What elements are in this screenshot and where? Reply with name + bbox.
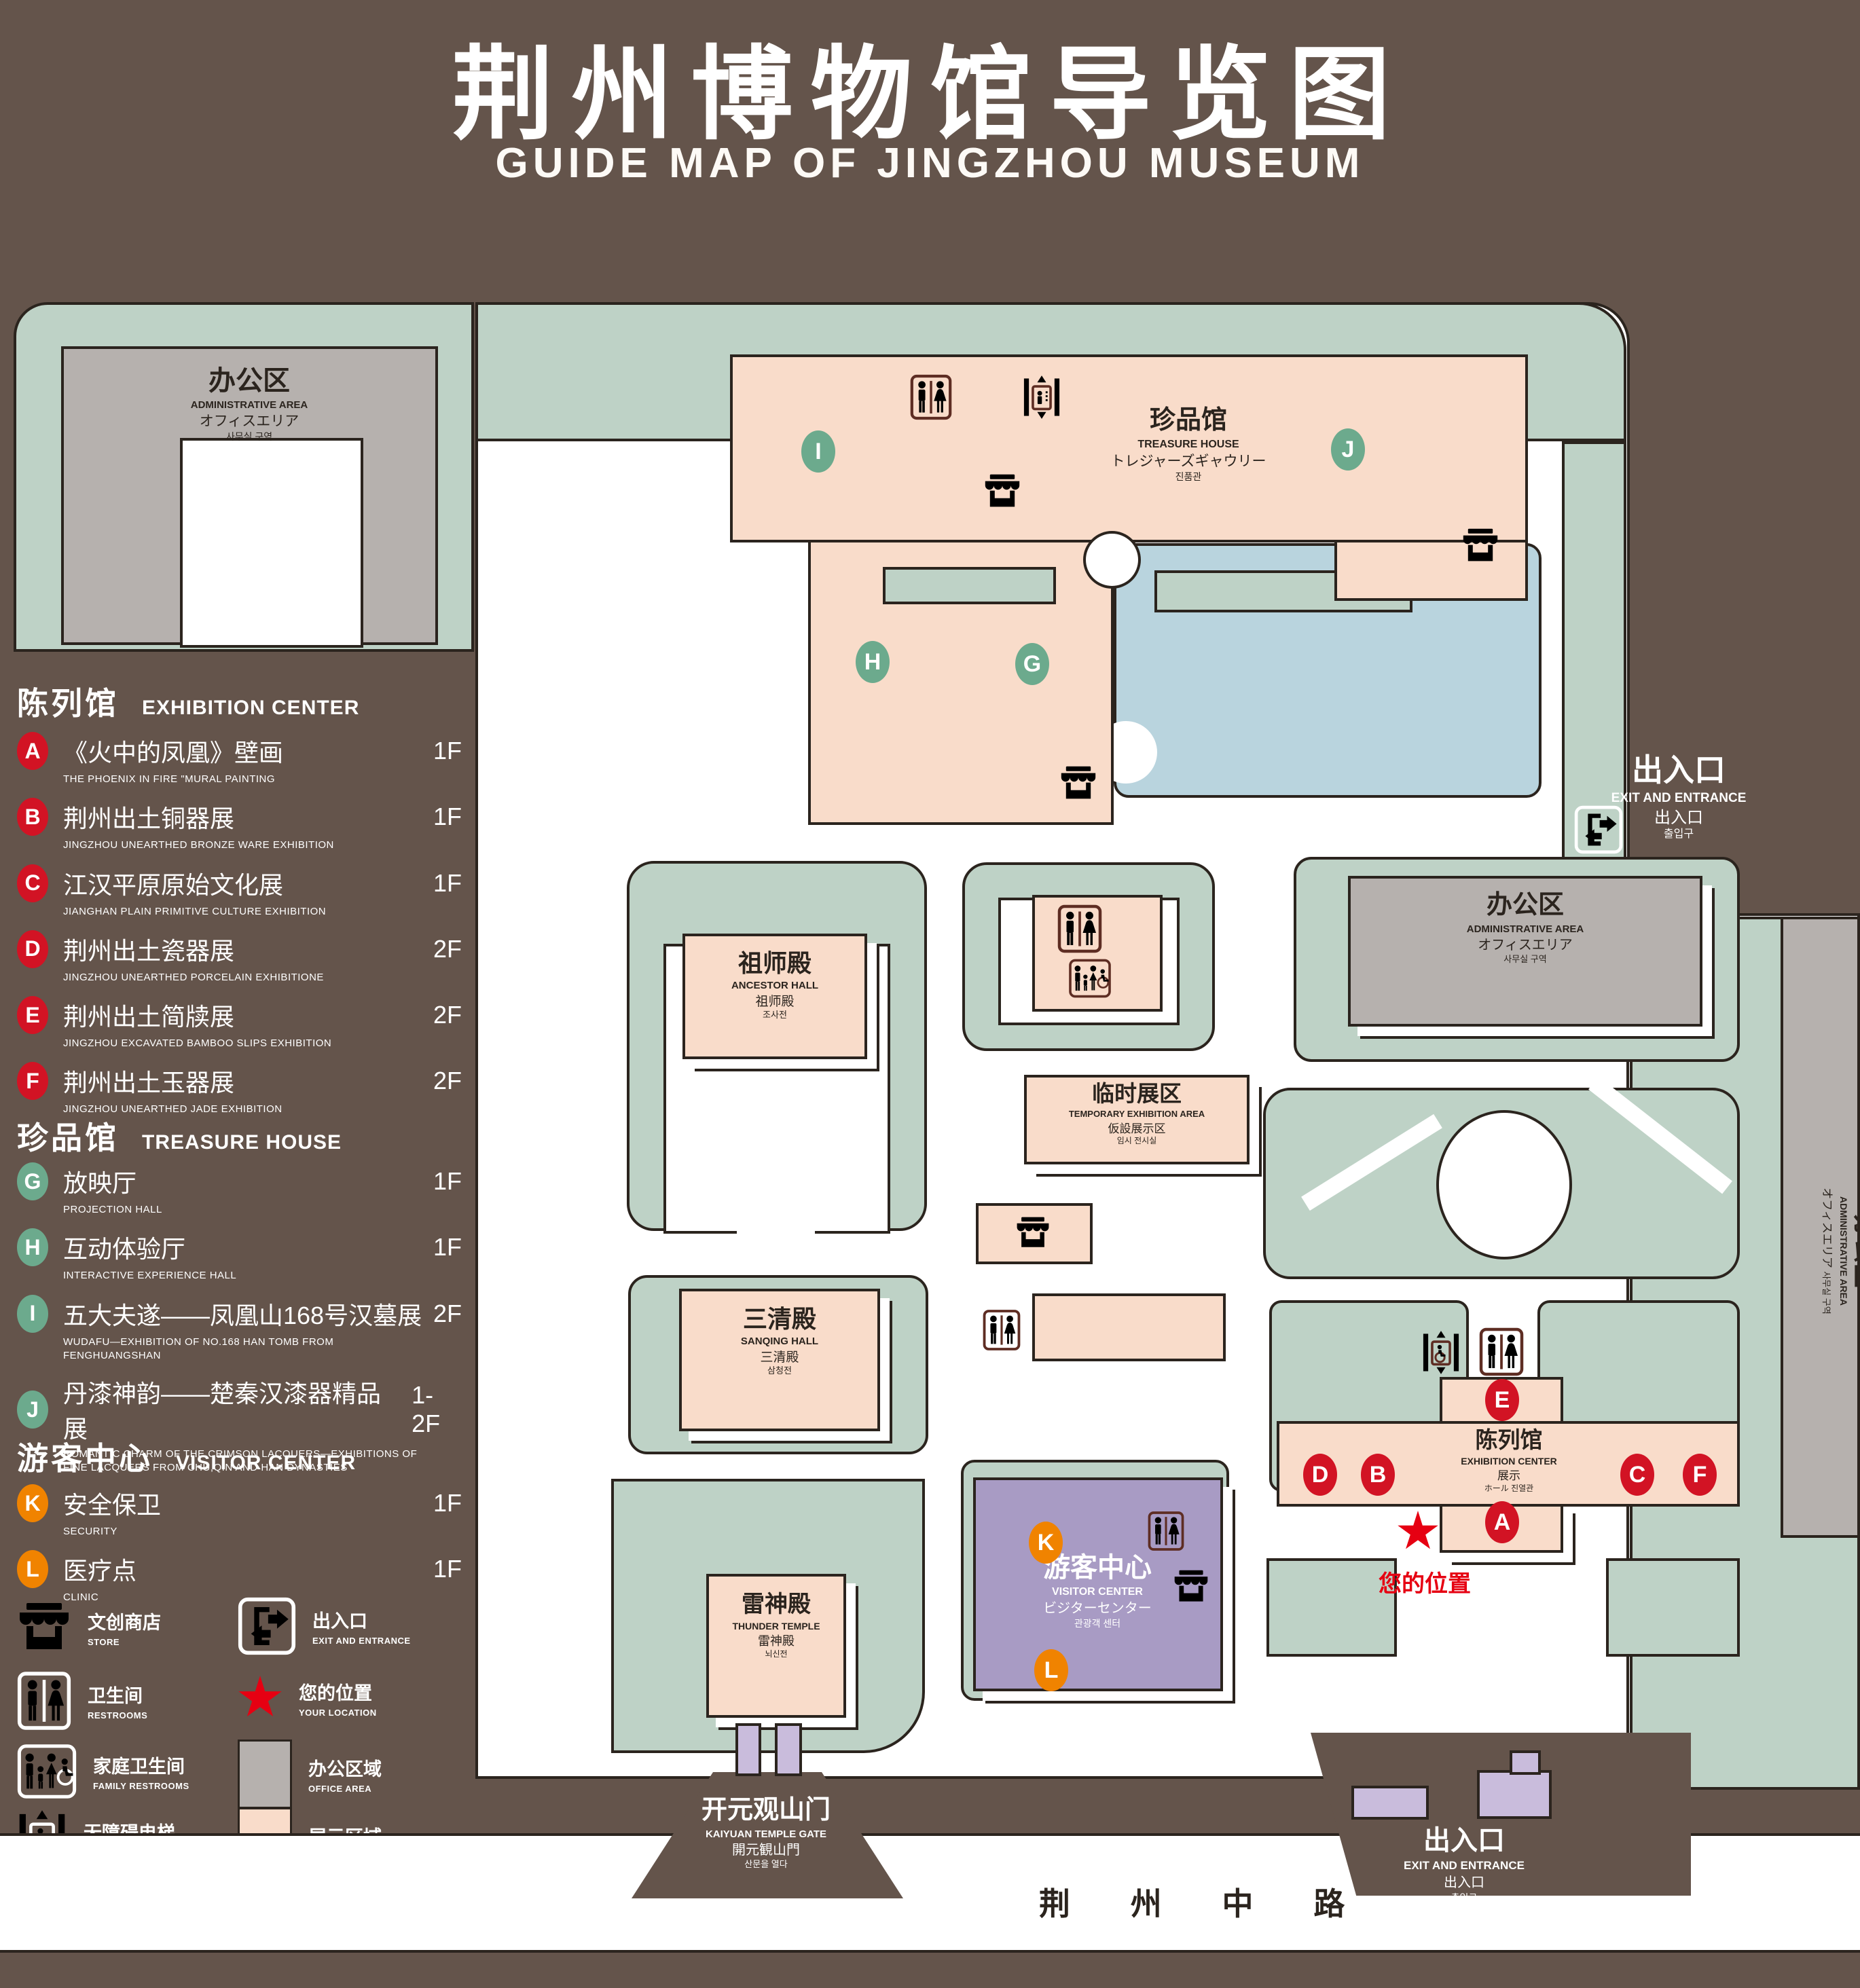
legend-item-title: 放映厅 <box>63 1164 426 1199</box>
lawn-exhibition-southeast <box>1606 1558 1740 1657</box>
map-marker-J: J <box>1331 428 1365 471</box>
exit-icon <box>238 1597 296 1655</box>
legend-marker-E: E <box>17 996 48 1034</box>
restroom-icon <box>1057 904 1103 953</box>
legend-item-floor: 2F <box>433 1300 462 1328</box>
temporary-exhibition-corridor <box>1032 1293 1226 1361</box>
legend-item-floor: 2F <box>433 1067 462 1095</box>
admin-east-label: 办公区 ADMINISTRATIVE AREA オフィスエリア 사무실 구역 <box>1820 1143 1860 1360</box>
legend-item-floor: 1F <box>433 1555 462 1583</box>
family-restroom-icon <box>17 1744 77 1799</box>
legend-item-H: H互动体验厅1FINTERACTIVE EXPERIENCE HALL <box>17 1228 462 1283</box>
legend-family-restrooms: 家庭卫生间FAMILY RESTROOMS <box>17 1744 189 1799</box>
kaiyuan-gate-tower <box>735 1723 761 1776</box>
exit-icon <box>1574 805 1623 854</box>
kaiyuan-gate-tower <box>775 1723 802 1776</box>
visitor-center-label: 游客中心 VISITOR CENTER ビジターセンター 관광객 센터 <box>1043 1552 1152 1629</box>
legend-item-caption: JINGZHOU UNEARTHED BRONZE WARE EXHIBITIO… <box>63 839 430 852</box>
lawn-exhibition-southwest <box>1266 1558 1397 1657</box>
temporary-exhibition-label: 临时展区 TEMPORARY EXHIBITION AREA 仮設展示区 임시 … <box>1069 1081 1205 1146</box>
legend-item-caption: JINGZHOU UNEARTHED PORCELAIN EXHIBITIONE <box>63 971 430 984</box>
map-marker-C: C <box>1620 1454 1654 1496</box>
legend-marker-J: J <box>17 1391 48 1429</box>
restroom-icon <box>1148 1509 1184 1553</box>
legend-marker-K: K <box>17 1484 48 1522</box>
thunder-temple-label: 雷神殿 THUNDER TEMPLE 雷神殿 뇌신전 <box>732 1591 820 1659</box>
road-label: 荆 州 中 路 <box>1039 1879 1370 1924</box>
legend-section-treasure-house: 珍品馆TREASURE HOUSE <box>17 1113 342 1158</box>
legend-item-floor: 1F <box>433 803 462 831</box>
legend-item-caption: JIANGHAN PLAIN PRIMITIVE CULTURE EXHIBIT… <box>63 905 430 919</box>
exit-south-booth <box>1477 1770 1552 1819</box>
restroom-icon <box>983 1309 1021 1351</box>
legend-item-C: C江汉平原原始文化展1FJIANGHAN PLAIN PRIMITIVE CUL… <box>17 864 462 919</box>
map-marker-L: L <box>1034 1649 1068 1691</box>
legend-item-E: E荆州出土简牍展2FJINGZHOU EXCAVATED BAMBOO SLIP… <box>17 996 462 1050</box>
legend-item-title: 互动体验厅 <box>63 1230 426 1265</box>
legend-item-title: 五大夫遂——凤凰山168号汉墓展 <box>63 1296 426 1331</box>
legend-item-title: 医疗点 <box>63 1551 426 1587</box>
store-icon <box>1059 759 1097 808</box>
admin-northwest-courtyard <box>180 438 363 648</box>
sanqing-hall-label: 三清殿 SANQING HALL 三清殿 삼청전 <box>741 1305 818 1376</box>
map-marker-A: A <box>1485 1501 1519 1543</box>
legend-item-K: K安全保卫1FSECURITY <box>17 1484 462 1539</box>
guide-map-poster: 荆州博物馆导览图 GUIDE MAP OF JINGZHOU MUSEUM 办公… <box>0 0 1860 1988</box>
exit-south-booth <box>1510 1750 1541 1775</box>
legend-item-floor: 1F <box>433 737 462 765</box>
legend-item-title: 《火中的凤凰》壁画 <box>63 733 426 769</box>
treasure-house-court-strip <box>883 567 1056 604</box>
legend-marker-L: L <box>17 1550 48 1588</box>
legend-item-title: 荆州出土铜器展 <box>63 799 426 834</box>
store-icon <box>1015 1210 1051 1256</box>
legend-item-caption: PROJECTION HALL <box>63 1203 430 1217</box>
legend-marker-B: B <box>17 798 48 836</box>
legend-item-title: 江汉平原原始文化展 <box>63 866 426 901</box>
legend-item-floor: 1-2F <box>412 1381 462 1438</box>
page-subtitle: GUIDE MAP OF JINGZHOU MUSEUM <box>0 139 1860 187</box>
legend-item-title: 安全保卫 <box>63 1486 426 1521</box>
legend-marker-I: I <box>17 1295 48 1333</box>
ancestor-hall-label: 祖师殿 ANCESTOR HALL 祖师殿 조사전 <box>731 949 818 1020</box>
admin-center-label: 办公区 ADMINISTRATIVE AREA オフィスエリア 사무실 구역 <box>1467 891 1584 965</box>
restroom-icon <box>910 370 952 424</box>
legend-your-location: 您的位置YOUR LOCATION <box>238 1676 377 1720</box>
restroom-icon <box>1479 1321 1524 1382</box>
legend-item-floor: 2F <box>433 935 462 963</box>
legend-section-exhibition-center: 陈列馆EXHIBITION CENTER <box>17 679 359 724</box>
legend-marker-D: D <box>17 930 48 968</box>
accessible-elevator-icon <box>1421 1323 1461 1382</box>
legend-item-I: I五大夫遂——凤凰山168号汉墓展2FWUDAFU—EXHIBITION OF … <box>17 1295 462 1363</box>
treasure-house-label: 珍品馆 TREASURE HOUSE トレジャーズギャウリー 진품관 <box>1111 406 1266 482</box>
legend-item-floor: 1F <box>433 1233 462 1262</box>
legend-item-G: G放映厅1FPROJECTION HALL <box>17 1162 462 1217</box>
map-marker-I: I <box>801 430 835 473</box>
legend-marker-H: H <box>17 1228 48 1266</box>
store-icon <box>983 467 1021 516</box>
kaiyuan-gate-label: 开元观山门 KAIYUAN TEMPLE GATE 開元観山門 산문을 열다 <box>701 1796 831 1870</box>
legend-item-caption: THE PHOENIX IN FIRE "MURAL PAINTING <box>63 773 430 786</box>
map-marker-D: D <box>1303 1454 1337 1496</box>
restroom-icon <box>17 1670 71 1731</box>
legend-list-exhibition-center: A《火中的凤凰》壁画1FTHE PHOENIX IN FIRE "MURAL P… <box>17 732 462 1128</box>
legend-item-title: 荆州出土瓷器展 <box>63 932 426 967</box>
page-title: 荆州博物馆导览图 <box>0 12 1860 160</box>
legend-marker-C: C <box>17 864 48 902</box>
legend-marker-G: G <box>17 1162 48 1200</box>
legend-item-caption: INTERACTIVE EXPERIENCE HALL <box>63 1269 430 1283</box>
legend-exit: 出入口EXIT AND ENTRANCE <box>238 1597 411 1655</box>
exit-south-booth <box>1351 1786 1429 1820</box>
legend-item-F: F荆州出土玉器展2FJINGZHOU UNEARTHED JADE EXHIBI… <box>17 1062 462 1116</box>
legend-item-A: A《火中的凤凰》壁画1FTHE PHOENIX IN FIRE "MURAL P… <box>17 732 462 786</box>
store-icon <box>1461 521 1499 570</box>
map-marker-F: F <box>1683 1454 1717 1496</box>
legend-item-floor: 2F <box>433 1001 462 1029</box>
legend-office-area: 办公区域OFFICE AREA <box>238 1739 382 1809</box>
legend-item-D: D荆州出土瓷器展2FJINGZHOU UNEARTHED PORCELAIN E… <box>17 930 462 984</box>
legend-store: 文创商店STORE <box>17 1602 161 1653</box>
legend-item-floor: 1F <box>433 869 462 898</box>
map-marker-K: K <box>1029 1522 1063 1564</box>
exit-northeast-label: 出入口 EXIT AND ENTRANCE 出入口 출입구 <box>1611 752 1747 841</box>
legend-item-floor: 1F <box>433 1489 462 1517</box>
your-location-label: 您的位置 <box>1379 1565 1471 1598</box>
legend-item-B: B荆州出土铜器展1FJINGZHOU UNEARTHED BRONZE WARE… <box>17 798 462 852</box>
legend-section-visitor-center: 游客中心VISITOR CENTER <box>17 1434 356 1479</box>
exit-south-label: 出入口 EXIT AND ENTRANCE 出入口 출입구 <box>1404 1825 1525 1903</box>
legend-item-title: 荆州出土简牍展 <box>63 997 426 1033</box>
map-marker-G: G <box>1015 643 1049 685</box>
store-icon <box>17 1602 71 1653</box>
admin-northwest-label: 办公区 ADMINISTRATIVE AREA オフィスエリア 사무실 구역 <box>191 365 308 442</box>
legend-item-caption: WUDAFU—EXHIBITION OF NO.168 HAN TOMB FRO… <box>63 1336 430 1363</box>
garden-pond-plaza <box>1436 1110 1572 1259</box>
legend-item-floor: 1F <box>433 1167 462 1196</box>
map-marker-H: H <box>856 641 890 683</box>
legend-item-title: 荆州出土玉器展 <box>63 1063 426 1099</box>
treasure-house-bridge <box>1083 531 1141 589</box>
exhibition-center-label: 陈列馆 EXHIBITION CENTER 展示 ホール 진열관 <box>1461 1427 1557 1493</box>
elevator-icon <box>1022 370 1061 424</box>
family-restroom-icon <box>1068 959 1112 998</box>
map-marker-E: E <box>1485 1379 1519 1421</box>
map-marker-B: B <box>1361 1454 1395 1496</box>
legend-marker-A: A <box>17 732 48 770</box>
legend-marker-F: F <box>17 1062 48 1100</box>
legend-item-caption: JINGZHOU EXCAVATED BAMBOO SLIPS EXHIBITI… <box>63 1037 430 1050</box>
legend-item-caption: SECURITY <box>63 1525 430 1539</box>
store-icon <box>1173 1563 1209 1610</box>
legend-restrooms: 卫生间RESTROOMS <box>17 1670 147 1731</box>
